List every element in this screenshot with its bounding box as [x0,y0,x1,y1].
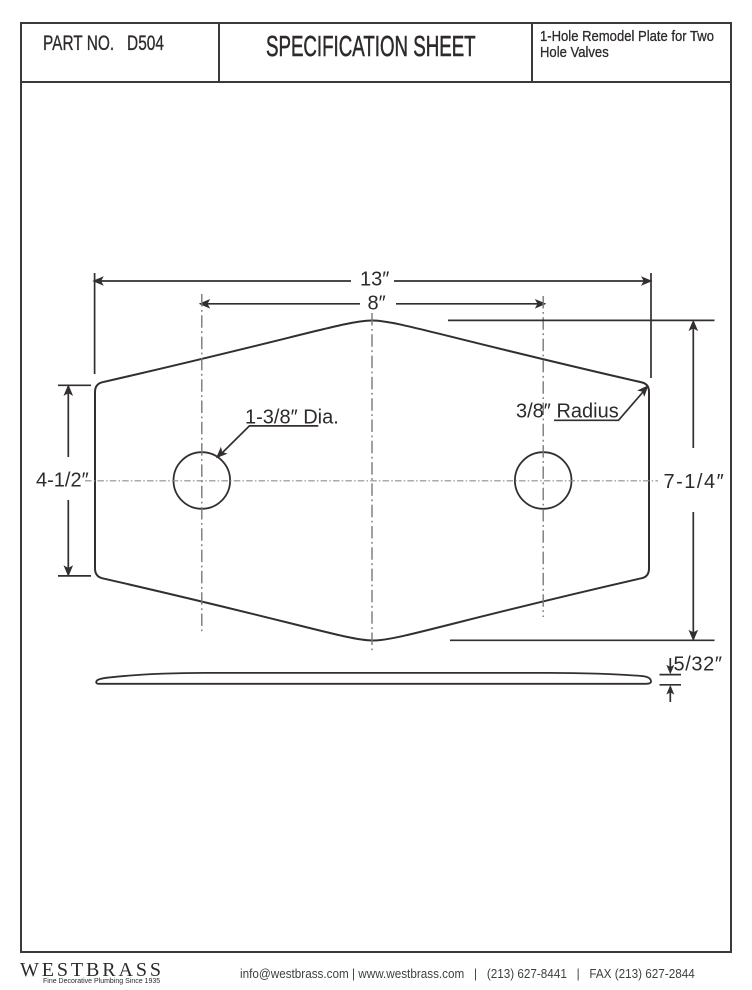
svg-text:5/32″: 5/32″ [674,653,723,675]
svg-text:1-3/8″ Dia.: 1-3/8″ Dia. [245,407,339,429]
svg-text:3/8″ Radius: 3/8″ Radius [516,401,619,423]
svg-text:7-1/4″: 7-1/4″ [664,471,726,493]
svg-text:13″: 13″ [360,268,389,290]
svg-text:8″: 8″ [368,292,386,314]
svg-text:4-1/2″: 4-1/2″ [36,470,89,492]
